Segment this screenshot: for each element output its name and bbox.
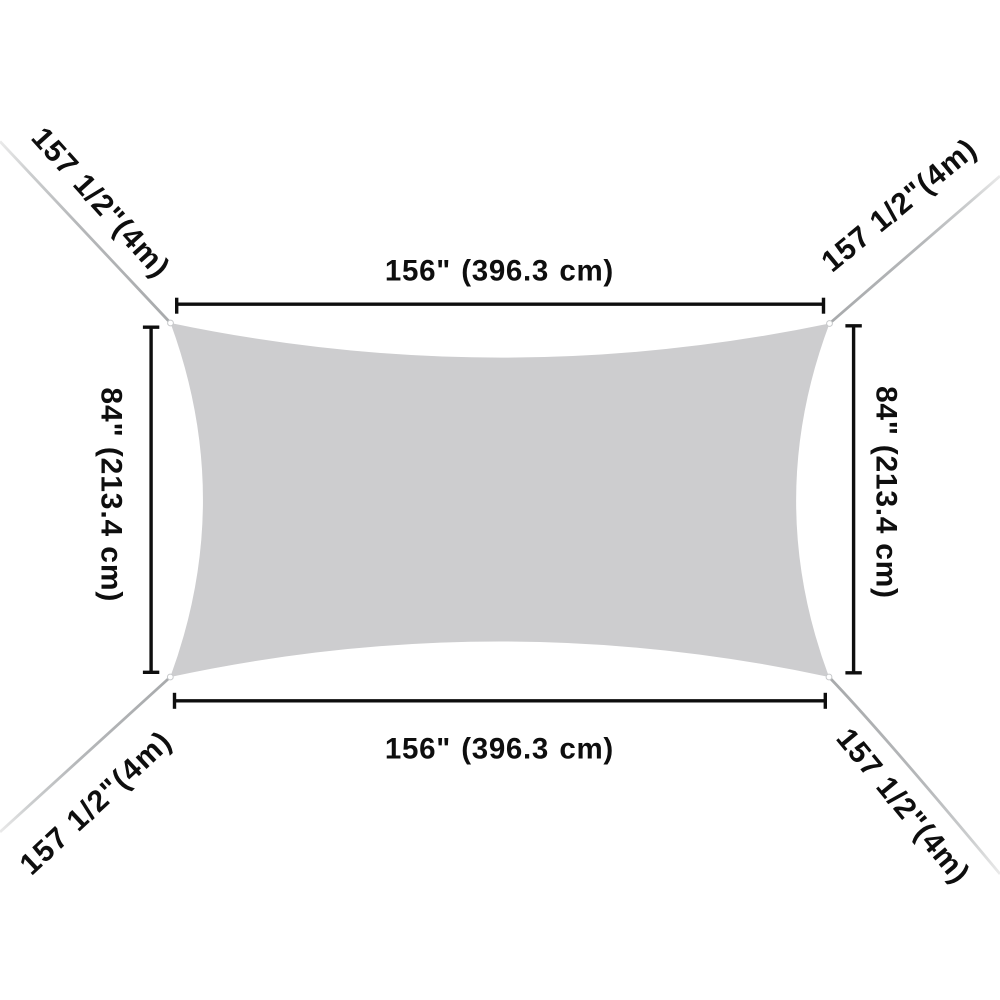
svg-text:156" (396.3 cm): 156" (396.3 cm) <box>385 255 614 288</box>
svg-text:156" (396.3 cm): 156" (396.3 cm) <box>385 733 614 766</box>
svg-text:157 1/2"(4m): 157 1/2"(4m) <box>25 121 176 284</box>
svg-text:157 1/2"(4m): 157 1/2"(4m) <box>815 133 982 279</box>
svg-text:157 1/2"(4m): 157 1/2"(4m) <box>830 722 976 889</box>
svg-text:157 1/2"(4m): 157 1/2"(4m) <box>14 725 178 881</box>
svg-text:84" (213.4 cm): 84" (213.4 cm) <box>870 386 903 598</box>
svg-text:84" (213.4 cm): 84" (213.4 cm) <box>95 387 128 601</box>
